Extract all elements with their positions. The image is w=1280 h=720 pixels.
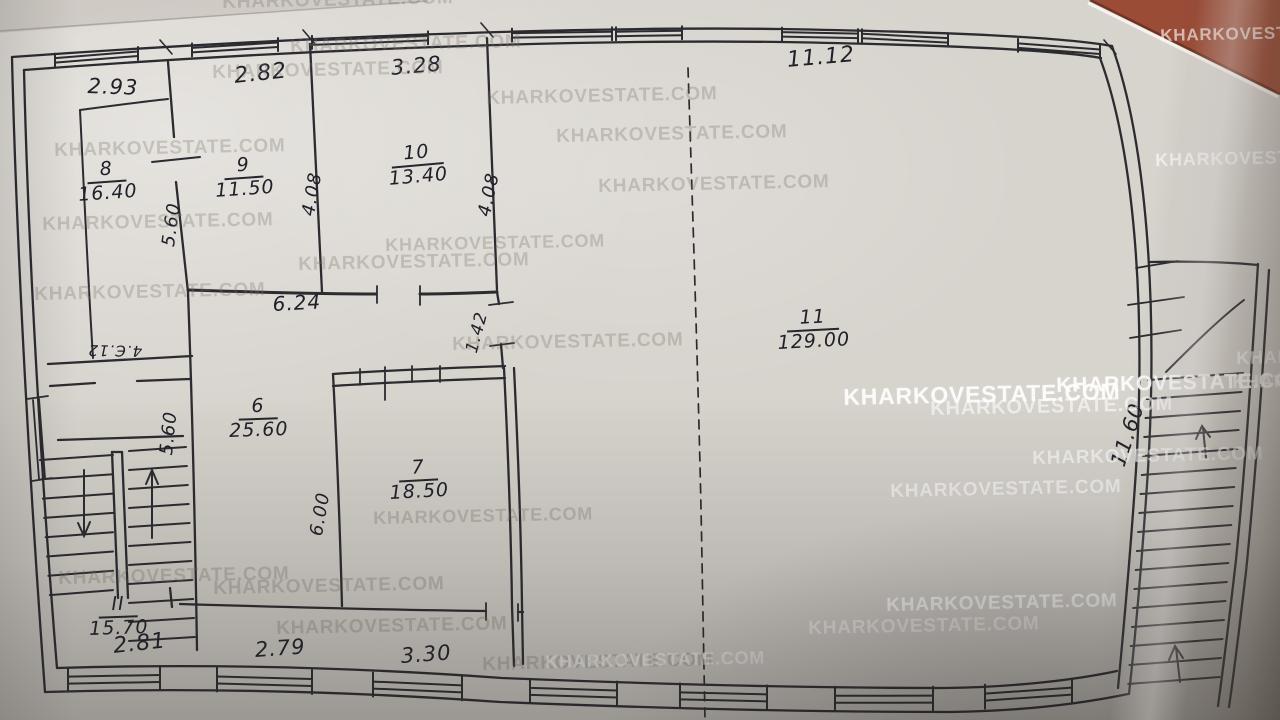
dashed-joint-line <box>688 68 705 718</box>
room-area: 129.00 <box>777 329 850 354</box>
plan-line <box>985 695 1072 701</box>
plan-line <box>1131 639 1223 646</box>
room-label-II: II15.70 <box>88 594 149 640</box>
right-stair-rail-b <box>1229 270 1269 707</box>
door-tick-8-9 <box>152 157 200 162</box>
wall-corridor-11-a <box>497 292 499 304</box>
room-area: 18.50 <box>389 480 449 504</box>
plan-line <box>985 688 1072 694</box>
plan-line <box>1142 468 1236 475</box>
room-area: 25.60 <box>229 419 289 442</box>
plan-line <box>46 532 113 537</box>
plan-line <box>68 682 160 684</box>
dimension-label: 6.24 <box>272 289 322 316</box>
right-stair-arrow-1 <box>1196 426 1210 458</box>
room8-inner-left <box>80 110 93 358</box>
plan-line <box>782 37 858 39</box>
plan-line <box>1137 544 1230 551</box>
wall-bottom-outer <box>45 690 1128 712</box>
room-label-10: 1013.40 <box>386 141 449 190</box>
plan-drawing <box>0 0 1280 720</box>
plan-line <box>680 699 767 701</box>
plan-line <box>1133 601 1225 608</box>
wall-7-11-a <box>504 368 514 666</box>
plan-line <box>129 542 191 546</box>
plan-line <box>50 590 113 595</box>
plan-line <box>47 552 113 557</box>
plan-line <box>1138 525 1231 532</box>
plan-line <box>1128 677 1219 684</box>
plan-line <box>41 474 113 479</box>
plan-line <box>217 684 312 687</box>
plan-line <box>373 682 462 686</box>
room7-top-wall-a <box>333 366 505 374</box>
dimension-label: 2.93 <box>87 74 139 100</box>
plan-line <box>1134 582 1226 589</box>
room-number: II <box>98 594 138 618</box>
plan-line <box>862 38 948 42</box>
room-area: 16.40 <box>78 181 139 206</box>
plan-line <box>40 455 113 460</box>
stair-arrow-down <box>78 470 90 536</box>
wall-right-inner <box>1100 58 1139 688</box>
room-label-6: 625.60 <box>228 396 289 442</box>
plan-line <box>373 689 462 693</box>
plan-line <box>1139 506 1232 513</box>
plan-line <box>512 32 612 33</box>
wall-stair-room6 <box>188 292 197 650</box>
wall-8-9-upper <box>168 62 174 137</box>
plan-line <box>1147 392 1242 399</box>
wall-9-10 <box>310 44 322 292</box>
right-stair-arrow-2 <box>1169 646 1183 682</box>
plan-line <box>680 692 767 694</box>
plan-line <box>129 466 187 470</box>
plan-line <box>44 513 113 518</box>
plan-line <box>1144 430 1238 437</box>
room-number: 6 <box>238 396 278 420</box>
plan-line <box>48 571 113 576</box>
plan-line <box>129 504 189 508</box>
dimension-label: 3.28 <box>390 52 443 80</box>
plan-line <box>1132 620 1224 627</box>
wall-corridor-11-b <box>501 344 503 368</box>
plan-line <box>1146 411 1241 418</box>
plan-line <box>782 32 858 34</box>
stairhall-top-wall-a <box>50 383 95 386</box>
plan-line <box>1148 373 1243 380</box>
plan-line <box>43 494 113 499</box>
plan-line <box>616 31 682 32</box>
plan-line <box>512 36 612 37</box>
plan-line <box>68 675 160 677</box>
wall-10-11 <box>487 38 497 290</box>
room-area: 11.50 <box>215 177 276 202</box>
room-label-7: 718.50 <box>388 457 450 504</box>
stair-arrow-up <box>146 470 158 538</box>
plan-line <box>1129 658 1221 665</box>
stair-divider-b <box>122 452 128 598</box>
stairhall-top-wall-b <box>137 379 190 381</box>
wall-left-outer <box>12 57 45 692</box>
door-tick-11-top <box>489 302 513 305</box>
right-stair-break-line <box>1166 300 1244 372</box>
plan-line <box>129 561 191 565</box>
plan-line <box>129 523 190 527</box>
plan-line <box>530 688 617 691</box>
plan-line <box>1141 487 1235 494</box>
room-label-11: 11129.00 <box>776 306 851 354</box>
wall-6-7 <box>333 374 342 606</box>
plan-line <box>129 485 188 489</box>
plan-line <box>616 35 682 36</box>
wall-corridor-top-b <box>420 292 497 294</box>
room8-inner-top <box>80 99 168 110</box>
room-number: 7 <box>398 457 438 482</box>
plan-line <box>862 34 948 38</box>
plan-line <box>217 677 312 680</box>
room-label-8: 816.40 <box>76 158 138 206</box>
wall-left-inner <box>24 70 57 668</box>
dimension-label: 4.Є.12 <box>87 341 142 360</box>
dimension-label: 3.30 <box>400 640 452 667</box>
room7-top-wall-b <box>333 378 505 386</box>
plan-line <box>1143 449 1237 456</box>
room-area: 15.70 <box>89 617 149 640</box>
dimension-label: 2.79 <box>254 634 306 661</box>
wall-right-outer <box>1112 46 1151 694</box>
plan-line <box>129 580 192 584</box>
plan-line <box>1136 563 1229 570</box>
landing-stub <box>170 588 172 607</box>
generated-windows-and-steps <box>40 26 1243 710</box>
plan-line <box>312 40 428 45</box>
plan-line <box>530 695 617 698</box>
room-label-9: 911.50 <box>213 154 275 202</box>
room6-bottom-wall-a <box>180 604 486 611</box>
floorplan-photo: 2.932.823.2811.126.245.604.084.085.606.0… <box>0 0 1280 720</box>
